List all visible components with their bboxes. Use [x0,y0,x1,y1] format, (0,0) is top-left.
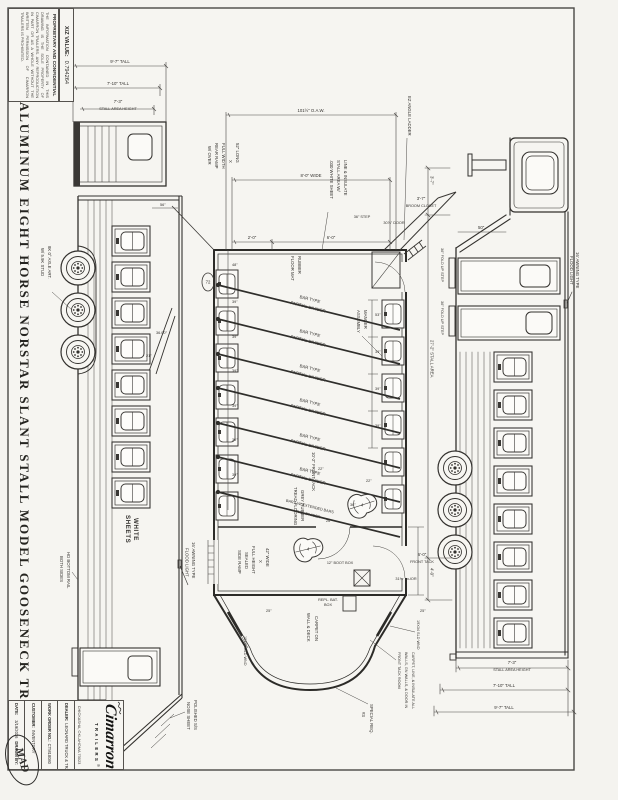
plan-dim-wide: 8'-0" WIDE [301,173,322,178]
proprietary-title: PROPRIETARY AND CONFIDENTIAL [51,12,56,98]
svg-text:.030 WHITE SHEET: .030 WHITE SHEET [329,160,334,199]
svg-text:42" WIDE: 42" WIDE [265,548,270,567]
dealer-row: DEALER: LEONARD TRUCK & TRAILER [58,701,75,769]
svg-text:X: X [258,560,263,563]
svg-text:7'-10" TALL: 7'-10" TALL [107,81,130,86]
xz-value: 0.794264 [64,61,70,84]
mat-label: RUBBER [297,256,302,274]
svg-text:36": 36" [350,503,356,507]
work-order-row: WORK ORDER NO.: CTM18080 [41,701,58,769]
svg-text:9'-7" TALL: 9'-7" TALL [110,59,130,64]
plan-dim-6ft: 6'-0" [327,235,336,240]
curb-dim-drop: 50" [478,225,485,230]
svg-text:REAR RAMP: REAR RAMP [214,143,219,169]
curb-dim-hitch: 3'-7" [430,176,435,185]
svg-text:WALLS, GN WALLS, & DOOR IN: WALLS, GN WALLS, & DOOR IN [404,652,408,709]
svg-text:25": 25" [266,609,272,613]
tread-label: GREY RUBBER [300,490,305,521]
gooseneck-carpet: CARPET ON [314,616,319,641]
boot-box-label: 12" BOOT BOX [327,561,354,565]
brand-sub: TRAILERS [94,723,99,763]
svg-text:52" LONG: 52" LONG [235,143,240,163]
svg-text:39": 39" [232,300,238,304]
svg-text:FULL WIDTH: FULL WIDTH [221,143,226,169]
curb-dim-front: 4'-0" [430,568,435,577]
svg-text:MANGER: MANGER [363,310,368,329]
white-sheets-label: WHITE [132,518,139,541]
svg-text:FLOOD LIGHT: FLOOD LIGHT [185,548,190,577]
proprietary-box: PROPRIETARY AND CONFIDENTIAL THE INFORMA… [8,8,59,102]
svg-text:SEALED: SEALED [244,552,249,569]
plan-dim-2ft: 2'-0" [248,235,257,240]
sld-wnd-top: 19X34 SLD WND [416,620,420,650]
front-door-gap [401,546,410,578]
svg-text:LINE & INSULATE: LINE & INSULATE [343,160,348,196]
svg-text:39": 39" [232,335,238,339]
drawing-canvas: 16' AWNING TYPE FLOOD LIGHT 36" FOLD UP … [0,0,618,800]
dim-72: 72 [206,280,211,285]
curb-dim-stall-area: 27'-2" STALL AREA [430,340,435,378]
dealer-value: LEONARD TRUCK & TRAILER [64,723,69,769]
trailer-drawing-sheet: 16' AWNING TYPE FLOOD LIGHT 36" FOLD UP … [0,0,618,800]
svg-text:25": 25" [420,609,426,613]
awning-angle: 36.00° [156,331,168,335]
svg-text:39": 39" [232,369,238,373]
svg-text:SPECIAL REQ.: SPECIAL REQ. [369,704,374,734]
plan-dim-oaw: 101½" O.A.W. [297,108,324,113]
broom-label: BROOM CLOSET [406,204,437,208]
axle-label: 8K 0° AXLE ART. [47,246,52,279]
road-awning-label: 16' AWNING TYPE [191,542,196,579]
svg-text:39": 39" [232,404,238,408]
curb-step-label-1: 36" FOLD UP STEP [440,248,444,282]
dim-48: 48" [232,263,238,267]
svg-text:X: X [228,160,233,163]
proprietary-body: THE INFORMATION CONTAINED IN THIS DRAWIN… [20,12,50,98]
svg-text:FULL HEIGHT: FULL HEIGHT [251,546,256,574]
svg-text:21": 21" [146,354,152,358]
scanned-drawing-page: 16' AWNING TYPE FLOOD LIGHT 36" FOLD UP … [0,0,618,800]
svg-text:BOTH SIDES: BOTH SIDES [59,556,64,582]
dim-stall-height-caption: STALL AREA HEIGHT [493,668,531,672]
rear-door-gap [401,262,410,292]
svg-text:22": 22" [366,479,372,483]
svg-text:FRONT TACK: FRONT TACK [410,560,434,564]
front-tack-len: 10'-2" FRONT TACK [311,452,316,491]
svg-text:FRONT TACK ROOM: FRONT TACK ROOM [397,652,401,689]
svg-text:7'-3": 7'-3" [114,99,123,104]
road-wheels [61,251,95,369]
rear-door-label: 30⅞" DOOR [383,221,404,225]
svg-text:39": 39" [232,438,238,442]
svg-text:39": 39" [375,424,381,428]
broom-dim: 3'-7" [417,196,426,201]
svg-text:ASSEMBLY: ASSEMBLY [356,310,361,333]
svg-text:TREAD FLOORING: TREAD FLOORING [293,487,298,526]
plan-ladder-label: EZ ANGLE LADDER [407,96,412,136]
svg-text:SIDE RAMP: SIDE RAMP [237,550,242,574]
svg-text:#3: #3 [361,712,366,717]
work-order-value: CTM18080 [47,744,52,764]
svg-text:BOX: BOX [324,603,332,607]
svg-text:39": 39" [232,473,238,477]
brand-city: CHICKASHA, OKLAHOMA 73023 [77,701,82,769]
dim-overall-height: 9'-7" TALL [494,705,514,710]
svg-text:FLOOR MAT: FLOOR MAT [290,256,295,281]
svg-text:STALL AREA W/: STALL AREA W/ [336,160,341,192]
svg-text:CARPET, LINE, & INSULATE ALL: CARPET, LINE, & INSULATE ALL [411,652,415,709]
curb-awning-label: 16' AWNING TYPE [575,252,580,289]
svg-text:6'-0": 6'-0" [418,552,427,557]
curb-step-label-2: 36" FOLD UP STEP [440,301,444,335]
svg-text:39": 39" [375,387,381,391]
registered-mark-icon: ® [96,764,101,767]
dim-mid-height: 7'-10" TALL [493,683,516,688]
xz-label: X/Z VALUE: [64,26,70,57]
svg-text:SHEETS: SHEETS [124,515,131,543]
svg-text:W/ OVER: W/ OVER [207,146,212,165]
dim-stall-height: 7'-3" [508,660,517,665]
curb-awning-label2: FLOOD LIGHT [569,256,574,285]
svg-text:WALL & DECK: WALL & DECK [306,613,311,642]
svg-text:REPL. BAT.: REPL. BAT. [318,598,338,602]
drawing-title: ALUMINUM EIGHT HORSE NORSTAR SLANT STALL… [10,102,32,694]
dim-53: 53" [375,313,381,317]
svg-text:HD BOTTOM RAIL: HD BOTTOM RAIL [66,552,71,589]
rear-step-label: 36" STEP [354,215,371,219]
svg-text:POLISHED S/S: POLISHED S/S [193,700,198,730]
svg-text:22": 22" [318,467,324,471]
xz-value-box: X/Z VALUE: 0.794264 [59,8,74,102]
svg-text:26": 26" [326,519,332,523]
svg-text:NOSE SHEET: NOSE SHEET [186,702,191,730]
svg-text:W/ 5.9K STUD: W/ 5.9K STUD [40,248,45,276]
curb-wheels [438,451,472,569]
svg-text:STALL AREA HEIGHT: STALL AREA HEIGHT [99,107,137,111]
svg-text:56": 56" [160,203,166,207]
